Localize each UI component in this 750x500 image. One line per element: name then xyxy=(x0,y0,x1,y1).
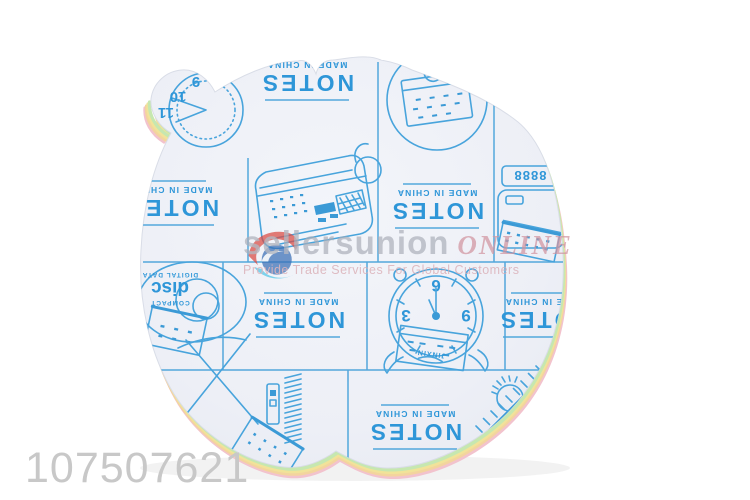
notes-stamp: NOTES MADE IN CHINA xyxy=(251,293,345,337)
notes-stamp: NOTES MADE IN CHINA xyxy=(368,405,462,449)
product-photo: 9 10 11 xyxy=(0,0,750,500)
corner-clock-number: 11 xyxy=(158,104,174,121)
origin-label: MADE IN CHINA xyxy=(267,60,348,70)
product-code: 107507621 xyxy=(25,444,249,493)
disc-top-label: COMPACT xyxy=(150,299,189,306)
notepad-illustration: 9 10 11 xyxy=(0,0,750,500)
origin-label: MADE IN CHINA xyxy=(505,297,586,307)
clock-number: 3 xyxy=(401,306,410,325)
notes-stamp: NOTES MADE IN CHINA xyxy=(498,293,592,337)
notes-stamp: NOTES MADE IN CHINA xyxy=(260,56,354,100)
notes-label: NOTES xyxy=(390,198,484,224)
origin-label: MADE IN CHINA xyxy=(375,409,456,419)
origin-label: MADE IN CHINA xyxy=(397,188,478,198)
disc-bottom-label: DIGITAL DATA xyxy=(142,271,198,278)
notes-label: NOTES xyxy=(260,70,354,96)
clock-number: 9 xyxy=(461,306,470,325)
origin-label: MADE IN CHINA xyxy=(258,297,339,307)
notes-stamp: NOTES MADE IN CHINA xyxy=(390,184,484,228)
origin-label: MADE IN CHINA xyxy=(132,185,213,195)
notes-label: NOTES xyxy=(125,195,219,221)
disc-label: disc xyxy=(151,277,189,298)
register-display: 8888 xyxy=(514,168,547,183)
corner-clock-number: 9 xyxy=(192,73,200,90)
notes-label: NOTES xyxy=(498,307,592,333)
notes-label: NOTES xyxy=(251,307,345,333)
notes-stamp: NOTES MADE IN CHINA xyxy=(125,181,219,225)
notes-label: NOTES xyxy=(368,419,462,445)
corner-clock-number: 10 xyxy=(170,88,187,105)
